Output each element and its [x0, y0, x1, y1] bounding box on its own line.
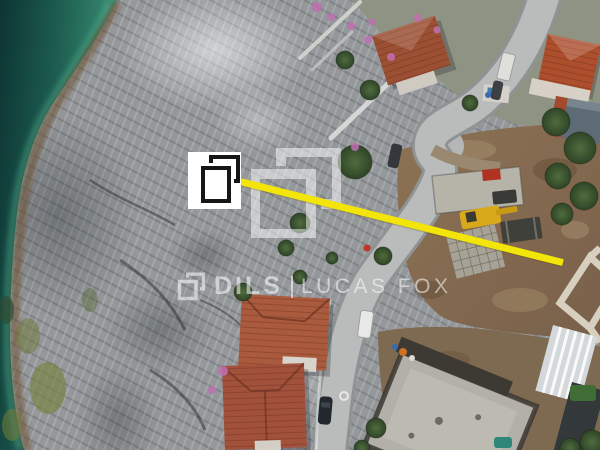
watermark-separator	[291, 276, 293, 298]
brand-watermark: DILS LUCAS FOX	[176, 271, 451, 302]
pool-green	[570, 385, 596, 401]
pool-teal	[494, 437, 512, 448]
aerial-photo: DILS LUCAS FOX	[0, 0, 600, 450]
watermark-brand-dils: DILS	[214, 274, 283, 299]
property-marker[interactable]	[188, 152, 241, 209]
watermark-brand-lucasfox: LUCAS FOX	[301, 276, 452, 297]
shipping-container-red	[482, 168, 501, 181]
red-scooter	[364, 245, 371, 252]
concrete-slab-center	[432, 167, 523, 214]
dark-car-bottom	[318, 396, 333, 425]
dils-logo-overlapping-squares-icon	[188, 152, 241, 209]
dils-logo-icon	[176, 272, 206, 302]
house-bottom-terracotta-2	[222, 363, 311, 450]
